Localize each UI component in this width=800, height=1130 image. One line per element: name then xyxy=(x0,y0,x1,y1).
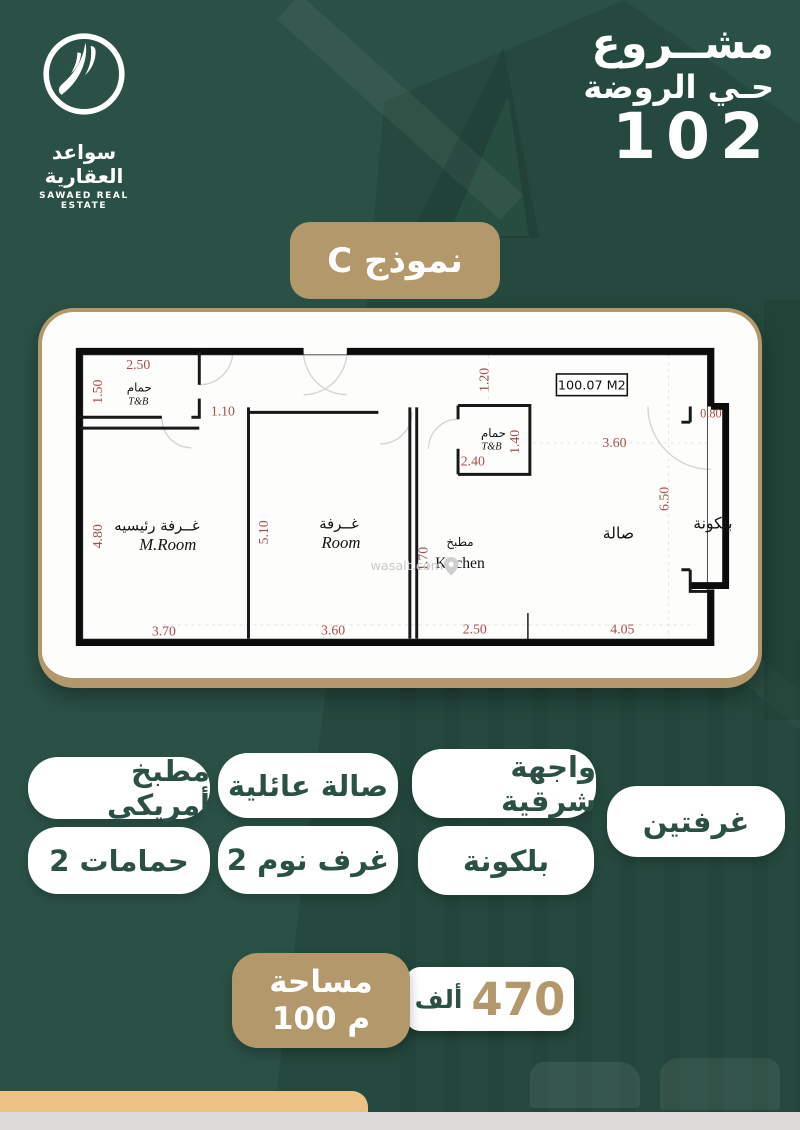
dim-hall-top: 3.60 xyxy=(602,435,626,450)
floor-plan: 100.07 M2 2.50 1.50 حمام T&B 1.10 4.80 غ… xyxy=(42,312,758,678)
dim-master-width: 3.70 xyxy=(152,624,176,639)
project-header: مشــروع حـي الروضة 102 xyxy=(583,22,774,168)
room-label-room-en: Room xyxy=(320,533,360,552)
room-label-hall-ar: صالة xyxy=(603,523,634,542)
background-building-edge xyxy=(764,300,800,720)
area-badge-value: 100 م xyxy=(272,1001,370,1038)
dim-kitchen-width: 2.50 xyxy=(463,622,487,637)
dim-bath2-width: 2.40 xyxy=(461,453,485,468)
dim-balcony-width: 0.80 xyxy=(700,406,722,420)
feature-label: 2 غرف نوم xyxy=(227,843,389,877)
watermark-text: wasalt.com xyxy=(370,559,443,574)
room-label-bath1-ar: حمام xyxy=(127,381,152,395)
bottom-gold-bar xyxy=(0,1091,368,1112)
bottom-gray-strip xyxy=(0,1112,800,1130)
room-label-balcony-ar: بلكونة xyxy=(693,513,732,533)
background-chevron-shape xyxy=(430,96,580,236)
project-number: 102 xyxy=(573,105,774,168)
dim-room-width: 3.60 xyxy=(321,623,345,638)
room-label-bath2-en: T&B xyxy=(481,442,502,453)
feature-label: بلكونة xyxy=(463,844,549,878)
background-chevron-shape xyxy=(388,48,598,238)
room-label-kitchen-ar: مطبخ xyxy=(446,535,473,549)
price-unit: ألف xyxy=(415,987,463,1012)
price-value: 470 xyxy=(471,977,565,1022)
room-label-bath1-en: T&B xyxy=(128,396,149,407)
wall-inner-face xyxy=(83,355,708,639)
door-arcs xyxy=(162,351,711,469)
brand-logo: سواعد العقارية SAWAED REAL ESTATE xyxy=(20,18,148,211)
total-area-box: 100.07 M2 xyxy=(556,374,627,396)
area-badge-word: مساحة xyxy=(269,964,373,1001)
watermark: wasalt.com xyxy=(370,557,458,575)
floor-plan-card: 100.07 M2 2.50 1.50 حمام T&B 1.10 4.80 غ… xyxy=(38,308,762,688)
feature-two-bathrooms: 2 حمامات xyxy=(28,827,210,894)
feather-icon xyxy=(28,18,140,130)
room-label-master-en: M.Room xyxy=(138,535,196,554)
model-badge: نموذج C xyxy=(290,222,500,299)
model-badge-label: نموذج C xyxy=(327,241,463,281)
feature-label: واجهة شرقية xyxy=(412,750,596,818)
feature-balcony: بلكونة xyxy=(418,826,594,895)
feature-family-hall: صالة عائلية xyxy=(218,753,398,818)
dim-room-height: 5.10 xyxy=(256,520,271,544)
feature-two-bedrooms: 2 غرف نوم xyxy=(218,826,398,894)
dim-hall-width: 4.05 xyxy=(610,622,634,637)
background-car-shape xyxy=(660,1058,780,1110)
plan-gridlines xyxy=(164,355,707,640)
brand-name-english: SAWAED REAL ESTATE xyxy=(20,191,148,211)
feature-label: 2 حمامات xyxy=(49,844,189,878)
room-label-master-ar: غــرفة رئيسيه xyxy=(114,517,200,534)
map-pin-icon xyxy=(444,557,459,575)
feature-american-kitchen: مطبخ أمريكي xyxy=(28,757,210,819)
dim-bath1-height: 1.50 xyxy=(90,380,105,404)
background-car-shape xyxy=(530,1062,640,1108)
room-label-bath2-ar: حمام xyxy=(481,426,506,440)
feature-east-facade: واجهة شرقية xyxy=(412,749,596,818)
feature-two-rooms: غرفتين xyxy=(607,786,785,857)
dim-hall-height: 6.50 xyxy=(657,487,672,511)
poster: سواعد العقارية SAWAED REAL ESTATE مشــرو… xyxy=(0,0,800,1130)
price-badge: 470 ألف xyxy=(406,967,574,1031)
outer-walls xyxy=(79,351,725,642)
total-area-label: 100.07 M2 xyxy=(558,379,626,394)
project-title: مشــروع xyxy=(583,22,774,67)
area-badge: مساحة 100 م xyxy=(232,953,410,1048)
feature-label: صالة عائلية xyxy=(228,769,388,803)
dim-passage: 1.10 xyxy=(211,403,235,418)
dim-bath2-height: 1.40 xyxy=(507,430,522,454)
dim-bath1-width: 2.50 xyxy=(126,357,150,372)
feature-label: غرفتين xyxy=(643,805,750,839)
dim-master-height: 4.80 xyxy=(90,524,105,548)
background-light-streak xyxy=(277,0,523,220)
room-label-room-ar: غــرفة xyxy=(319,515,359,532)
dim-vestibule: 1.20 xyxy=(477,368,492,392)
feature-label: مطبخ أمريكي xyxy=(28,754,210,822)
brand-name-arabic: سواعد العقارية xyxy=(20,140,148,188)
